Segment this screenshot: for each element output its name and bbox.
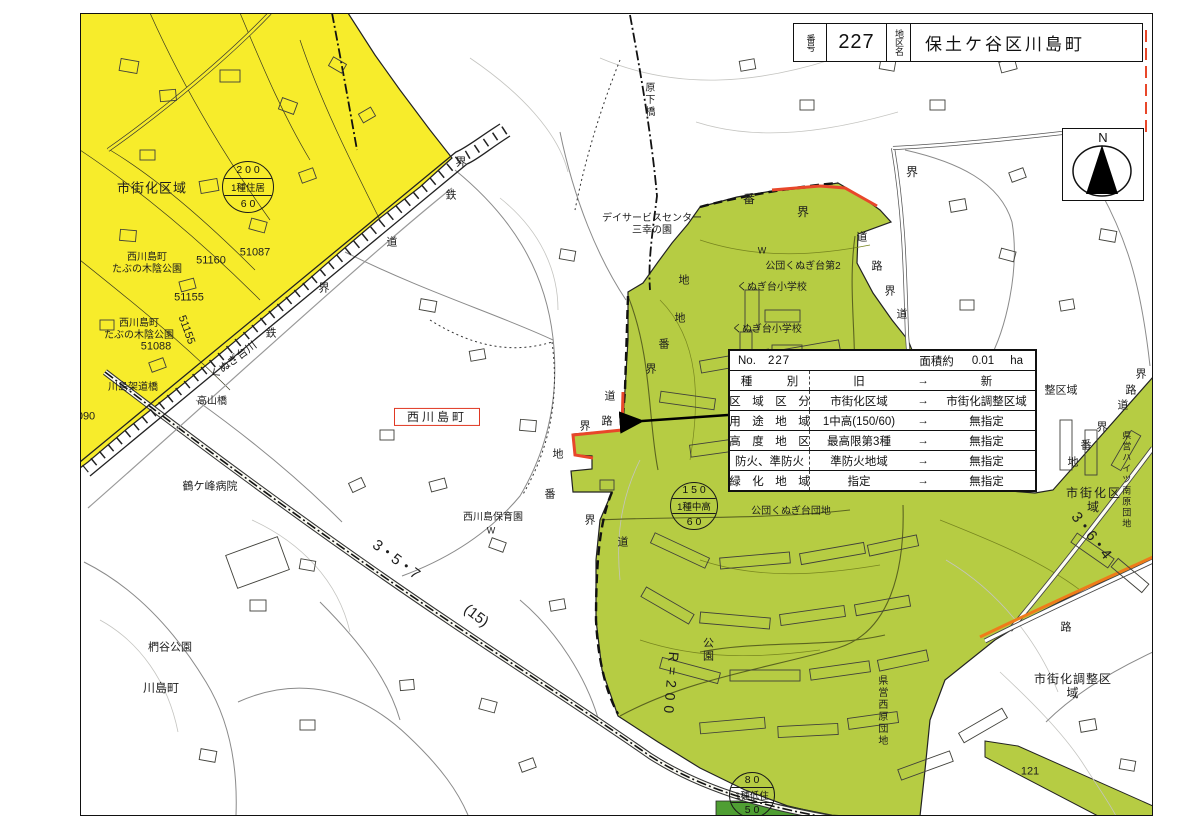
row-label: 高 度 地 区 [730, 431, 810, 450]
header-no-label: 番号 [794, 24, 827, 61]
row-new-value: 新 [938, 373, 1035, 389]
info-table-row: 用 途 地 域1中高(150/60)→無指定 [730, 410, 1035, 430]
row-old-value: 最高限第3種 [810, 433, 908, 449]
planning-map-page: 市街化区域西川島町 たぶの木陰公園51160510875115551155西川島… [0, 0, 1200, 829]
row-new-value: 無指定 [938, 473, 1035, 489]
row-arrow: → [908, 375, 938, 387]
header-district-label: 地区名 [887, 24, 911, 61]
info-no-label: No. [730, 355, 768, 367]
info-table-row: 種 別旧→新 [730, 370, 1035, 390]
info-table-row: 防火、準防火準防火地域→無指定 [730, 450, 1035, 470]
info-table-header-row: No. 227 面積約 0.01 ha [730, 351, 1035, 370]
info-table-row: 高 度 地 区最高限第3種→無指定 [730, 430, 1035, 450]
info-table-row: 区 域 区 分市街化区域→市街化調整区域 [730, 390, 1035, 410]
row-new-value: 市街化調整区域 [938, 393, 1035, 409]
row-old-value: 市街化区域 [810, 393, 908, 409]
header-district-value: 保土ケ谷区川島町 [911, 24, 1142, 61]
row-label: 種 別 [730, 371, 810, 390]
info-area-value: 0.01 [972, 355, 994, 367]
header-no-value: 227 [827, 24, 887, 61]
row-label: 緑 化 地 域 [730, 471, 810, 490]
info-table-row: 緑 化 地 域指定→無指定 [730, 470, 1035, 490]
row-label: 区 域 区 分 [730, 391, 810, 410]
compass-box: N [1062, 128, 1144, 201]
row-arrow: → [908, 395, 938, 407]
row-old-value: 指定 [810, 473, 908, 489]
row-old-value: 準防火地域 [810, 453, 908, 469]
row-new-value: 無指定 [938, 453, 1035, 469]
row-old-value: 旧 [810, 373, 908, 389]
row-arrow: → [908, 435, 938, 447]
info-area-label: 面積約 [919, 353, 954, 369]
row-old-value: 1中高(150/60) [810, 413, 908, 429]
info-area-unit: ha [1010, 355, 1035, 367]
row-label: 防火、準防火 [730, 451, 810, 470]
row-arrow: → [908, 415, 938, 427]
info-no-value: 227 [768, 355, 848, 367]
row-new-value: 無指定 [938, 433, 1035, 449]
zoning-info-table: No. 227 面積約 0.01 ha 種 別旧→新区 域 区 分市街化区域→市… [728, 349, 1037, 492]
row-new-value: 無指定 [938, 413, 1035, 429]
row-arrow: → [908, 475, 938, 487]
row-label: 用 途 地 域 [730, 411, 810, 430]
row-arrow: → [908, 455, 938, 467]
header-table: 番号 227 地区名 保土ケ谷区川島町 [793, 23, 1143, 62]
compass-north-label: N [1098, 130, 1107, 145]
